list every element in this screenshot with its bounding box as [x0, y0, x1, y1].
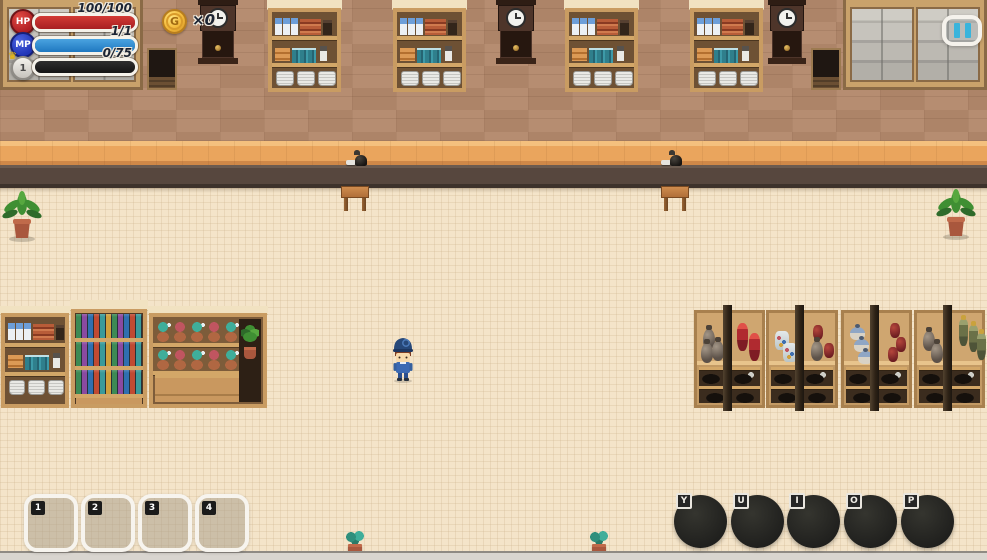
shelf-goods-row [570, 13, 633, 36]
shelf-goods-row [570, 40, 633, 63]
plate-row [570, 67, 633, 87]
shelf-body [1, 313, 69, 408]
flower-pot-row [155, 319, 241, 343]
hotbar-key-label: 2 [88, 501, 102, 515]
plate-row [6, 376, 64, 400]
pottery-shelf [841, 310, 912, 408]
plate-stack [297, 71, 315, 86]
clock-base [198, 58, 238, 64]
mp-badge-label: MP [15, 40, 31, 50]
shelf-goods-row [695, 40, 758, 63]
book-row [76, 370, 142, 394]
wood-post [723, 305, 732, 411]
plate-stack [719, 71, 737, 86]
wall-shelf [564, 0, 639, 92]
clock-base [768, 58, 806, 64]
hotbar-slot-3[interactable]: 3 [138, 494, 192, 552]
crown-icon: ♛ [8, 51, 17, 62]
shelf-body [393, 8, 466, 92]
vase [811, 341, 823, 361]
clock-pendulum [784, 45, 790, 51]
shelf-body [268, 8, 341, 92]
bottom-wall-strip [0, 551, 987, 560]
plate-stack [615, 71, 633, 86]
shelf-goods-row [695, 13, 758, 36]
coin-symbol: G [170, 15, 179, 28]
character-sprite [388, 335, 418, 383]
bookshelf [70, 300, 148, 408]
counter-top [0, 141, 987, 165]
plate-stack [276, 71, 294, 86]
glass-panel [850, 7, 914, 82]
coin-icon: G [162, 9, 187, 34]
xp-bar-fill [35, 61, 135, 73]
grocery-shelf [0, 306, 70, 408]
stool [341, 186, 369, 214]
wood-post [870, 305, 879, 411]
book-row [76, 342, 142, 366]
shelf-goods-row [6, 347, 64, 370]
grandfather-clock [198, 0, 238, 64]
plate-stack [48, 380, 64, 395]
red-jar [888, 347, 898, 362]
clock-face [506, 8, 526, 28]
clock-head [498, 5, 534, 31]
stool [661, 186, 689, 214]
counter-front [0, 165, 987, 188]
action-key-label: P [903, 493, 919, 509]
action-button-y[interactable]: Y [674, 495, 727, 548]
wooden-chest [811, 48, 841, 90]
plate-stack [698, 71, 716, 86]
shelf-goods-row [398, 13, 461, 36]
pottery-shelf [694, 310, 765, 408]
hotbar-slot-2[interactable]: 2 [81, 494, 135, 552]
flower-pot-row [155, 347, 241, 371]
pause-icon [965, 23, 971, 38]
hotbar-slot-1[interactable]: 1 [24, 494, 78, 552]
hotbar-key-label: 1 [31, 501, 45, 515]
shelf-goods-row [273, 40, 336, 63]
grandfather-clock [768, 0, 806, 64]
shelf-goods-row [398, 40, 461, 63]
red-jar [890, 323, 900, 338]
clock-base [496, 58, 536, 64]
plate-stack [28, 380, 44, 395]
plant-graphic [2, 188, 42, 242]
plate-stack [740, 71, 758, 86]
potted-plant [2, 188, 42, 242]
wooden-chest [147, 48, 177, 90]
stool-top [341, 186, 369, 198]
action-key-label: I [789, 493, 805, 509]
olive-bottle [959, 319, 968, 346]
action-key-label: U [733, 493, 749, 509]
vase [931, 343, 943, 363]
game-viewport: HP 100/100 MP 1/1 ♛ 1 0/75 G ×0 1 2 3 4 … [0, 0, 987, 560]
action-button-i[interactable]: I [787, 495, 840, 548]
wood-post [943, 305, 952, 411]
clock-body [772, 30, 802, 58]
plate-stack [401, 71, 419, 86]
plate-stack [594, 71, 612, 86]
pause-icon [954, 23, 960, 38]
bookshelf-base [76, 398, 142, 404]
grandfather-clock [496, 0, 536, 64]
plant-graphic [936, 186, 976, 240]
shelf-goods-row [6, 318, 64, 341]
bookshelf-body [71, 309, 147, 408]
stool-top [661, 186, 689, 198]
counter-shadow [0, 188, 987, 193]
action-button-p[interactable]: P [901, 495, 954, 548]
clock-body [500, 30, 532, 58]
level-number: 1 [20, 63, 27, 74]
wall-shelf [689, 0, 764, 92]
plate-row [398, 67, 461, 87]
display-body [149, 313, 267, 408]
shelf-body [565, 8, 638, 92]
plate-stack [443, 71, 461, 86]
hp-badge-label: HP [16, 17, 30, 27]
shelf-body [690, 8, 763, 92]
plate-stack [573, 71, 591, 86]
potted-plant [936, 186, 976, 240]
pottery-shelf [914, 310, 985, 408]
red-jar [824, 343, 834, 358]
xp-value: 0/75 [30, 47, 132, 59]
clock-body [202, 30, 234, 58]
mp-value: 1/1 [30, 25, 132, 37]
service-bell [659, 144, 685, 168]
red-bottle [737, 323, 748, 351]
action-key-label: O [846, 493, 862, 509]
plate-stack [422, 71, 440, 86]
plate-stack [318, 71, 336, 86]
service-bell [344, 144, 370, 168]
plate-row [695, 67, 758, 87]
xp-bar [32, 58, 138, 76]
olive-bottle [977, 333, 986, 360]
plate-row [273, 67, 336, 87]
hotbar-key-label: 3 [145, 501, 159, 515]
hotbar-key-label: 4 [202, 501, 216, 515]
action-button-u[interactable]: U [731, 495, 784, 548]
clock-head [770, 5, 804, 31]
coin-count: ×0 [192, 11, 215, 29]
hp-value: 100/100 [30, 2, 132, 14]
clock-face [777, 8, 797, 28]
book-row [76, 314, 142, 338]
shelf-goods-row [273, 13, 336, 36]
wall-shelf [392, 0, 467, 92]
action-key-label: Y [676, 493, 692, 509]
plant-alcove [239, 319, 261, 402]
display-base-panel [155, 375, 243, 402]
wall-shelf [267, 0, 342, 92]
pottery-shelf [766, 310, 838, 408]
wood-post [795, 305, 804, 411]
hotbar-slot-4[interactable]: 4 [195, 494, 249, 552]
flower-display-shelf [148, 306, 268, 408]
red-bottle [749, 333, 760, 361]
pause-button[interactable] [942, 15, 982, 46]
plate-stack [9, 380, 25, 395]
clock-pendulum [513, 45, 519, 51]
player-character [388, 335, 418, 383]
clock-pendulum [215, 45, 221, 51]
action-button-o[interactable]: O [844, 495, 897, 548]
